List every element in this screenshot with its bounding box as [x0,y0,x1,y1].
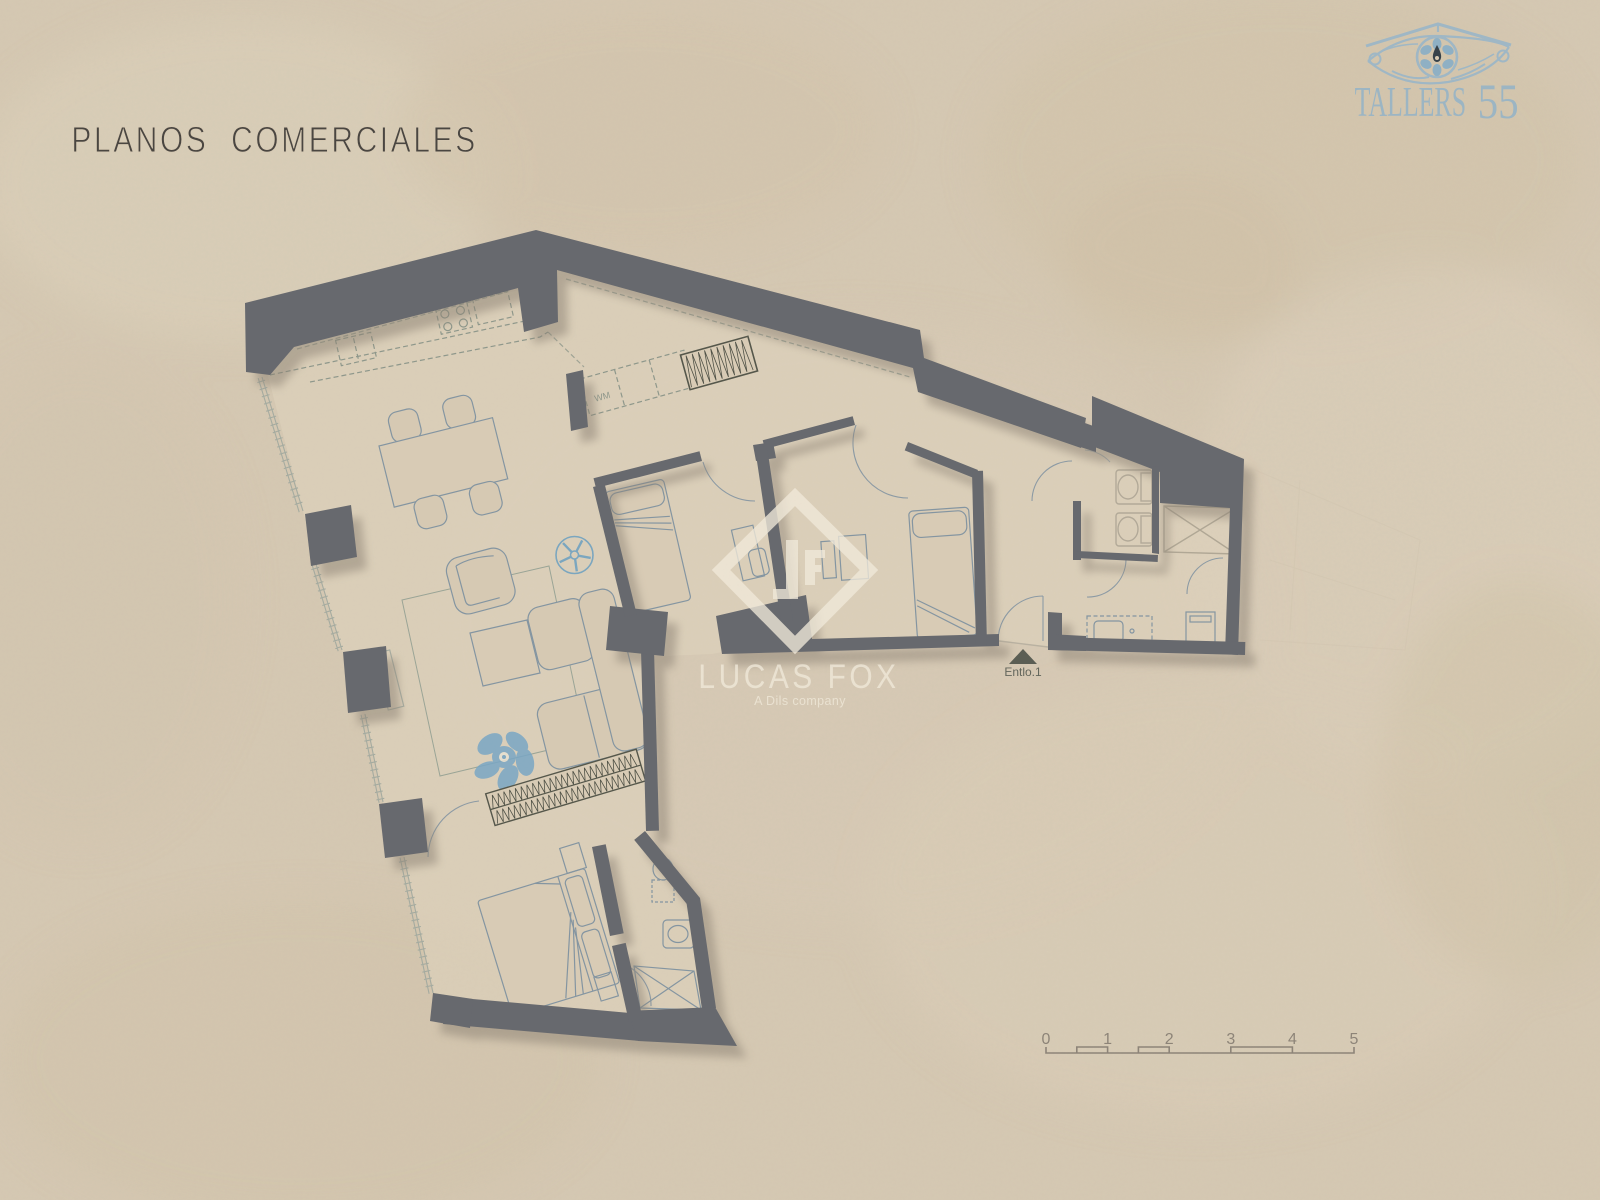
svg-text:4: 4 [1288,1031,1297,1048]
svg-text:TALLERS: TALLERS [1355,80,1467,126]
svg-text:LUCAS FOX: LUCAS FOX [698,657,899,695]
svg-text:PLANOS COMERCIALES: PLANOS COMERCIALES [71,120,477,160]
svg-text:2: 2 [1165,1031,1174,1048]
svg-text:0: 0 [1042,1031,1051,1048]
svg-text:1: 1 [1103,1031,1112,1048]
svg-text:A Dils company: A Dils company [754,694,846,708]
svg-text:3: 3 [1226,1031,1235,1048]
svg-text:Entlo.1: Entlo.1 [1004,665,1042,679]
svg-text:55: 55 [1478,73,1519,129]
svg-text:5: 5 [1350,1031,1359,1048]
